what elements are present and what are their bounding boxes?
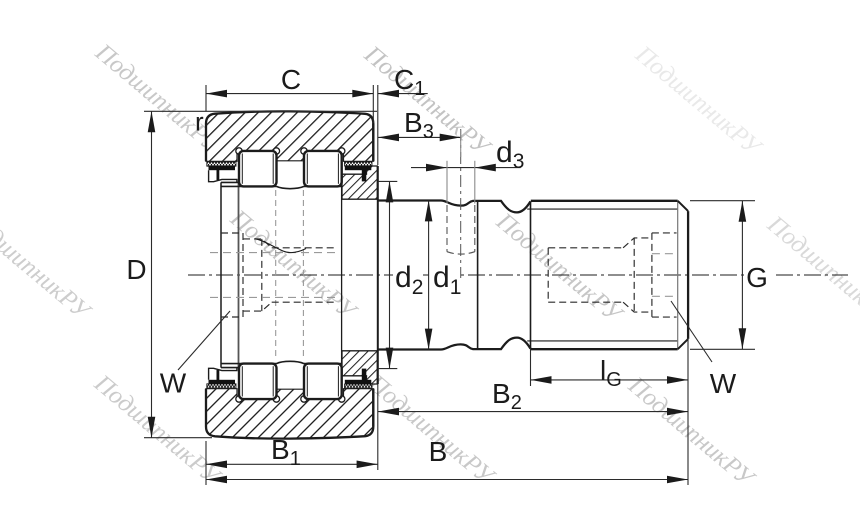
- svg-text:r: r: [195, 107, 204, 137]
- svg-text:C: C: [281, 64, 301, 95]
- svg-text:B: B: [429, 436, 448, 467]
- svg-text:W: W: [160, 368, 187, 399]
- svg-text:G: G: [746, 262, 768, 293]
- svg-text:W: W: [710, 368, 737, 399]
- svg-text:D: D: [126, 254, 146, 285]
